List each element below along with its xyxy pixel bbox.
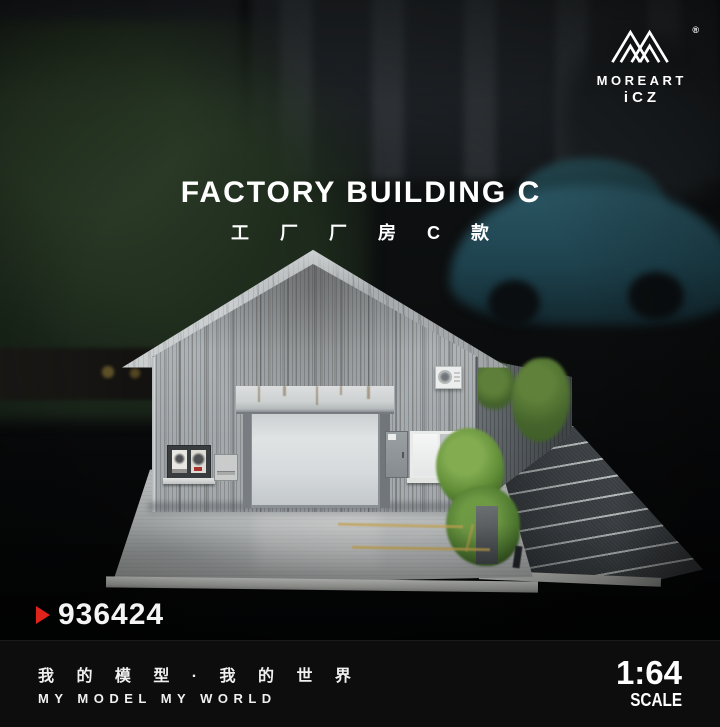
utility-box-slot — [217, 471, 235, 475]
background-car-wheel — [628, 272, 684, 320]
product-number: 936424 — [36, 598, 164, 632]
base-edge-front — [106, 576, 538, 592]
air-conditioner — [435, 366, 462, 389]
footer-slogans: 我 的 模 型 · 我 的 世 界 MY MODEL MY WORLD — [38, 662, 360, 706]
product-number-text: 936424 — [58, 598, 164, 632]
poster-red-tag — [194, 467, 202, 471]
slogan-chinese: 我 的 模 型 · 我 的 世 界 — [38, 662, 360, 686]
rust-streak — [367, 386, 370, 399]
poster — [191, 450, 206, 473]
brand-logo: ® MOREART iCZ — [574, 22, 706, 106]
ac-vents — [454, 372, 460, 384]
electrical-panel — [385, 431, 408, 478]
vine-foliage — [474, 362, 516, 410]
window-pane — [413, 434, 438, 476]
brand-sub-name: iCZ — [574, 89, 706, 106]
scale-block: 1:64 SCALE — [616, 657, 682, 710]
background-car-wheel — [488, 280, 540, 326]
panel-handle — [402, 452, 404, 458]
registered-trademark: ® — [692, 25, 699, 35]
product-photo: ® MOREART iCZ FACTORY BUILDING C 工 厂 厂 房… — [0, 0, 720, 640]
rust-streak — [340, 386, 342, 395]
brand-name: MOREART — [574, 73, 706, 88]
utility-box — [214, 454, 238, 481]
bench-shelf — [163, 478, 215, 484]
red-arrow-icon — [36, 606, 50, 624]
wall-corner-trim — [152, 357, 155, 512]
panel-label — [388, 434, 396, 440]
product-title-chinese: 工 厂 厂 房 C 款 — [0, 219, 720, 245]
footer-bar: 我 的 模 型 · 我 的 世 界 MY MODEL MY WORLD 1:64… — [0, 640, 720, 727]
scale-label: SCALE — [626, 690, 682, 711]
roller-shutter-door — [252, 410, 378, 505]
slogan-english: MY MODEL MY WORLD — [38, 691, 360, 706]
product-title: FACTORY BUILDING C — [0, 176, 720, 210]
poster-board — [167, 445, 211, 479]
door-reflection — [255, 508, 380, 570]
rust-streak — [316, 386, 318, 405]
poster — [172, 450, 187, 473]
ac-fan — [438, 370, 452, 384]
mountain-monogram-icon — [610, 22, 670, 70]
poster: ® MOREART iCZ FACTORY BUILDING C 工 厂 厂 房… — [0, 0, 720, 727]
rust-streak — [283, 386, 286, 396]
scale-ratio: 1:64 — [616, 657, 682, 688]
door-awning — [236, 386, 394, 414]
rust-streak — [258, 386, 260, 402]
title-block: FACTORY BUILDING C 工 厂 厂 房 C 款 — [0, 176, 720, 245]
corner-pillar — [476, 506, 498, 564]
